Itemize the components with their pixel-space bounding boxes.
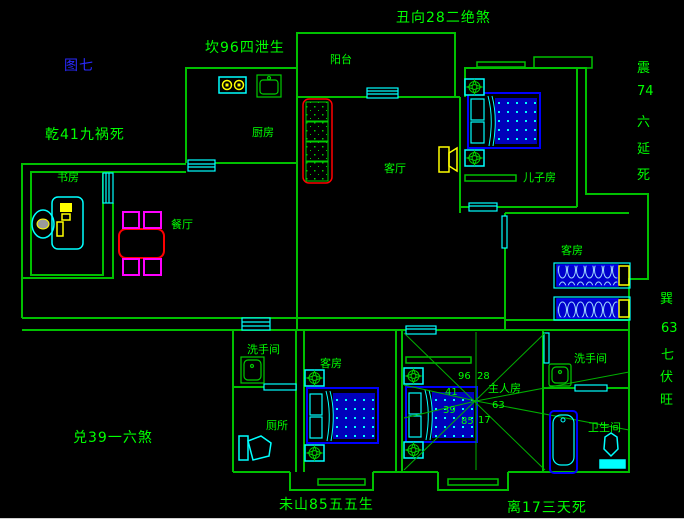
floorplan-canvas: 图七 丑向28二绝煞 坎96四泄生 乾41九祸死 兑39一六煞 未山85五五生 … [0, 0, 684, 519]
fengshui-label-north: 坎96四泄生 [205, 37, 285, 57]
guest-right-door [502, 216, 507, 248]
compass-number-bottom-right: 17 [478, 415, 491, 426]
nightstand-icon [404, 442, 423, 458]
room-label-toilet: 厕所 [266, 417, 288, 433]
fengshui-label-top: 丑向28二绝煞 [396, 7, 491, 27]
room-label-balcony: 阳台 [330, 51, 352, 67]
room-label-dining: 餐厅 [171, 216, 193, 232]
room-label-kitchen: 厨房 [252, 124, 274, 140]
fengshui-label-bottom: 未山85五五生 [279, 494, 374, 514]
toilet-icon [239, 436, 271, 460]
bathroom-toilet-icon [600, 433, 625, 468]
room-label-washroom-right: 洗手间 [574, 350, 607, 366]
bathtub-icon [550, 411, 577, 473]
room-label-master: 主人房 [488, 380, 521, 396]
stove-icon [219, 77, 246, 93]
washroom-right-window [544, 333, 549, 363]
washroom-divider-window [264, 384, 296, 390]
balcony-window [367, 88, 398, 98]
master-window [406, 326, 436, 334]
washroom-left-sink-icon [241, 357, 264, 383]
son-bed-icon [468, 93, 540, 148]
compass-number-bottom-left: 85 [461, 416, 474, 427]
figure-label: 图七 [64, 55, 94, 75]
kitchen-sink-icon [257, 75, 281, 97]
nightstand-icon [465, 79, 484, 95]
guest-bottom-bed-icon [307, 388, 378, 443]
room-label-son-room: 儿子房 [523, 169, 556, 185]
room-label-living: 客厅 [384, 160, 406, 176]
tv-icon [439, 147, 457, 172]
corridor-window [242, 318, 270, 330]
nightstand-icon [465, 150, 484, 166]
room-label-guest-right: 客房 [561, 242, 583, 258]
study-desk-icon [32, 197, 83, 249]
room-label-study: 书房 [57, 169, 79, 185]
room-label-guest-bottom: 客房 [320, 355, 342, 371]
guest-right-beds-icon [554, 263, 630, 320]
sofa-icon [303, 99, 332, 183]
room-label-bathroom: 卫生间 [588, 419, 621, 435]
fengshui-label-west: 兑39一六煞 [73, 427, 153, 447]
hall-window [469, 203, 497, 211]
bathroom-divider-window [575, 385, 607, 391]
room-label-washroom-left: 洗手间 [247, 341, 280, 357]
compass-number-top-left: 96 [458, 371, 471, 382]
study-window [103, 173, 113, 203]
compass-number-right: 63 [492, 400, 505, 411]
nightstand-icon [404, 368, 423, 384]
compass-number-left-lower: 39 [443, 405, 456, 416]
nightstand-icon [305, 445, 324, 461]
fengshui-label-south: 离17三天死 [507, 497, 587, 517]
kitchen-door [188, 160, 215, 171]
washroom-right-sink-icon [549, 364, 571, 386]
compass-number-left-upper: 41 [445, 387, 458, 398]
dining-table-icon [119, 212, 164, 275]
nightstand-icon [305, 370, 324, 386]
fengshui-label-northwest: 乾41九祸死 [45, 124, 125, 144]
compass-number-top-right: 28 [477, 371, 490, 382]
